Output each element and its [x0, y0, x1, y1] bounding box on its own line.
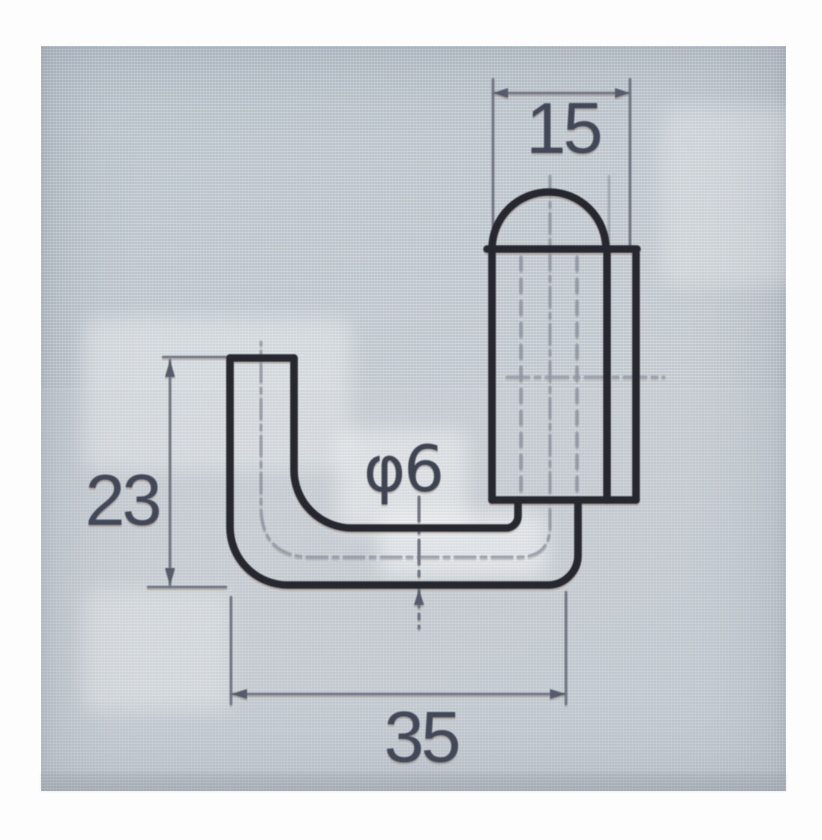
arrow-icon	[615, 88, 630, 98]
technical-drawing-svg: 15 23 35 φ6	[0, 0, 822, 840]
dimension-arrows	[165, 88, 630, 699]
arrow-icon	[165, 360, 175, 377]
arrow-icon	[493, 88, 508, 98]
rod-diameter-label: φ6	[364, 433, 443, 507]
arrow-icon	[550, 689, 566, 699]
arrow-icon	[414, 589, 424, 605]
dim15-label: 15	[526, 89, 601, 169]
dimension-lines	[148, 79, 630, 704]
arrow-icon	[165, 568, 175, 585]
arrow-icon	[231, 689, 247, 699]
dim35-label: 35	[384, 698, 459, 778]
page: 15 23 35 φ6	[0, 0, 822, 840]
dim23-label: 23	[85, 461, 159, 541]
